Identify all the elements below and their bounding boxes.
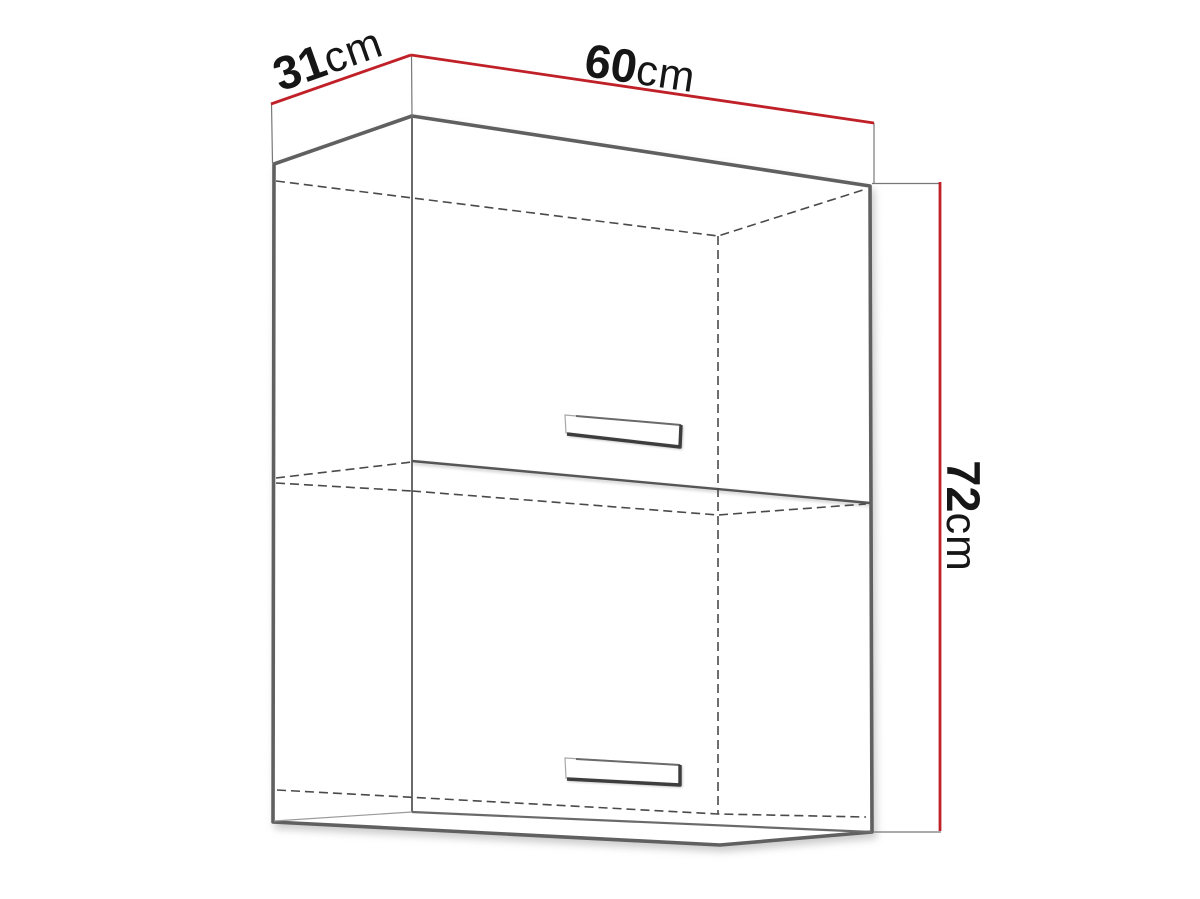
cabinet-outer-outline [273, 116, 872, 845]
extension-line-apex [412, 55, 413, 116]
extension-line-left [272, 103, 273, 163]
height-unit: cm [937, 512, 985, 571]
height-dimension-label: 72cm [937, 460, 990, 572]
width-value: 60 [581, 33, 641, 93]
height-value: 72 [937, 460, 990, 512]
depth-dimension-label: 31cm [266, 14, 389, 101]
cabinet-diagram-canvas: 31cm 60cm 72cm [0, 0, 1200, 899]
width-dimension-label: 60cm [581, 33, 699, 102]
width-unit: cm [633, 46, 699, 102]
cabinet-dimension-diagram: 31cm 60cm 72cm [0, 0, 1200, 899]
